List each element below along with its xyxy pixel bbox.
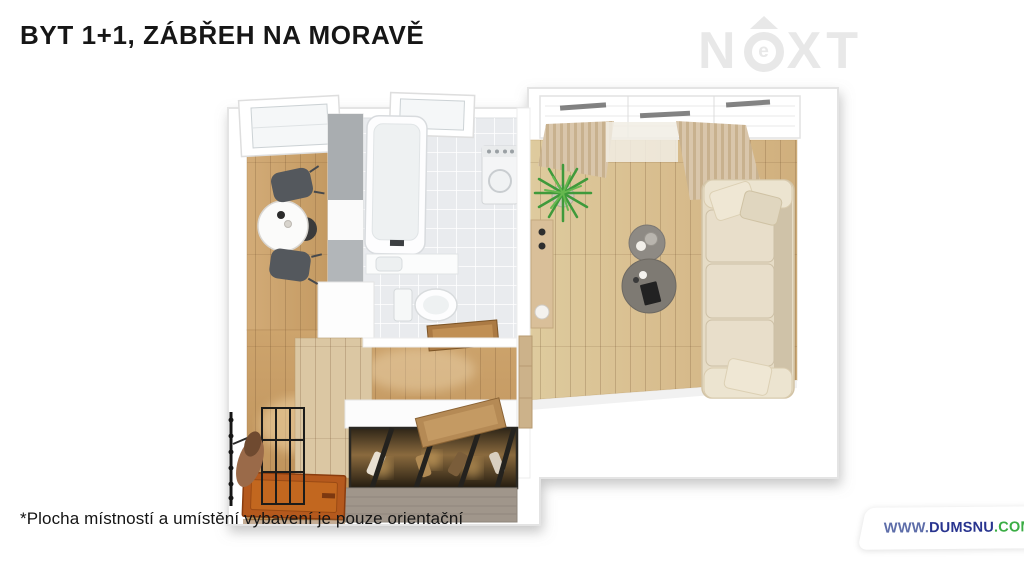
sofa (702, 180, 794, 398)
page: BYT 1+1, ZÁBŘEH NA MORAVĚ N e XT (0, 0, 1024, 575)
kitchen-window (239, 95, 342, 156)
washing-machine (482, 146, 518, 204)
watermark-url: WWW.DUMSNU.COM (862, 519, 1024, 536)
sheer-curtain (606, 122, 678, 162)
bathtub (365, 115, 427, 254)
washbasin-counter (366, 254, 458, 274)
door-handle (322, 493, 335, 498)
interior-door-leaf (519, 336, 532, 428)
wall-console (531, 220, 553, 328)
kitchen-counter (318, 282, 374, 338)
floorplan-render (0, 0, 1024, 575)
toilet (394, 289, 457, 321)
watermark-badge: WWW.DUMSNU.COM (858, 506, 1024, 550)
tub-faucet (390, 240, 404, 246)
bathroom-wall (363, 338, 517, 347)
disclaimer-text: *Plocha místností a umístění vybavení je… (20, 509, 463, 529)
